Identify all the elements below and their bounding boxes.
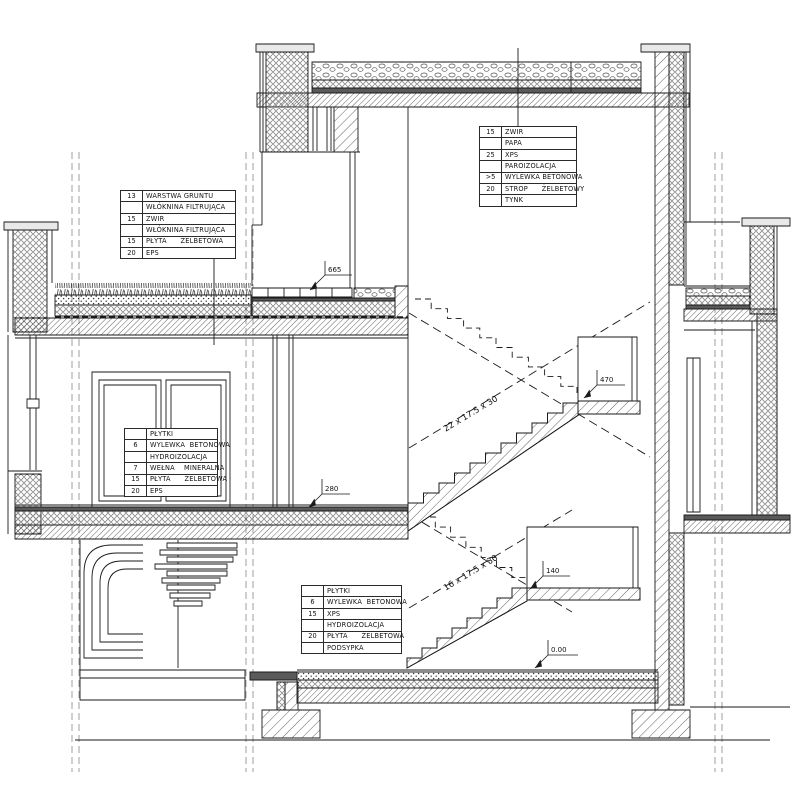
terrace-slab-edge — [395, 286, 408, 318]
left-window-transom — [27, 399, 39, 408]
layer-thickness — [302, 586, 324, 596]
material-layer-row: 6WYLEWKA BETONOWA — [125, 440, 217, 451]
annex-floor-finish — [684, 515, 790, 520]
material-layer-row: 15PŁYTA ŻELBETOWA — [121, 237, 235, 248]
material-layer-row: 6WYLEWKA BETONOWA — [302, 597, 401, 608]
parapet-insulation — [266, 52, 308, 152]
material-layer-row: PAPA — [480, 138, 576, 149]
right-wall-concrete — [655, 52, 669, 710]
layer-material: TYNK — [502, 197, 523, 204]
roof-coping-right — [641, 44, 690, 52]
layer-material: PAROIZOLACJA — [502, 163, 556, 170]
partition-wall — [273, 335, 408, 508]
material-layer-row: 15ZWIR — [480, 127, 576, 138]
mid-floor-insulation — [15, 511, 408, 525]
ground-slab — [297, 688, 658, 703]
layer-material: HYDROIZOLACJA — [147, 454, 207, 461]
material-layer-row: >5WYLEWKA BETONOWA — [480, 173, 576, 184]
layer-thickness: 7 — [125, 463, 147, 473]
layer-thickness: 20 — [121, 248, 143, 258]
terrace-slab — [15, 318, 408, 335]
material-layer-row: PODSYPKA — [302, 643, 401, 653]
layer-material: ZWIR — [502, 129, 523, 136]
layer-material: PŁYTA ŻELBETOWA — [147, 476, 227, 483]
layer-thickness — [121, 225, 143, 235]
layer-material: EPS — [143, 250, 159, 257]
material-layer-row: 20PŁYTA ŻELBETOWA — [302, 632, 401, 643]
architectural-section-drawing: 665 470 280 140 0.00 — [0, 0, 800, 800]
layer-thickness — [121, 202, 143, 212]
layer-material: HYDROIZOLACJA — [324, 622, 384, 629]
layer-thickness — [480, 161, 502, 171]
landing-470-opening — [578, 337, 637, 401]
layer-thickness: 13 — [121, 191, 143, 201]
material-layer-row: PŁYTKI — [302, 586, 401, 597]
material-layer-row: TYNK — [480, 195, 576, 205]
terrace-pavers — [252, 288, 352, 297]
terrace-insulation — [252, 301, 395, 316]
layer-material: PŁYTA ŻELBETOWA — [143, 238, 223, 245]
layer-thickness: 20 — [480, 184, 502, 194]
hidden-flight-steps-upper — [415, 299, 577, 396]
annex-floor-slab — [684, 520, 790, 533]
right-wall-insulation-upper — [669, 52, 684, 285]
layer-material: PŁYTKI — [324, 588, 350, 595]
layer-material: WYLEWKA BETONOWA — [502, 174, 583, 181]
layer-material: EPS — [147, 488, 163, 495]
right-annex — [684, 218, 790, 707]
annex-wall-insulation — [757, 314, 777, 515]
layer-material: ZWIR — [143, 216, 164, 223]
layer-thickness: 6 — [302, 597, 324, 607]
layer-material: PŁYTKI — [147, 431, 173, 438]
roof-slab — [257, 93, 689, 107]
landing-140-opening — [527, 527, 638, 588]
level-label: 665 — [328, 266, 341, 274]
main-roof-assembly — [256, 44, 690, 126]
layer-material: XPS — [324, 611, 340, 618]
layer-thickness — [302, 643, 324, 653]
ground-insulation — [297, 680, 658, 688]
level-label: 280 — [325, 485, 338, 493]
footing-left — [262, 710, 320, 738]
layer-material: WEŁNA MINERALNA — [147, 465, 225, 472]
level-marker-000: 0.00 — [535, 640, 578, 668]
layer-thickness: 15 — [121, 214, 143, 224]
layer-material: WŁÓKNINA FILTRUJĄCA — [143, 227, 225, 234]
level-label: 0.00 — [551, 646, 567, 654]
material-layer-row: 20EPS — [125, 486, 217, 496]
green-roof-assembly — [15, 256, 408, 345]
stairwell — [407, 337, 640, 668]
right-exterior-wall — [655, 52, 740, 710]
upper-flight-dimension: 22 x 17.5 x 30 — [442, 394, 500, 434]
layer-thickness: 20 — [302, 632, 324, 642]
roof-layers-table: 15ZWIRPAPA25XPSPAROIZOLACJA>5WYLEWKA BET… — [479, 126, 577, 207]
spiral-stair-treads — [155, 543, 237, 606]
layer-thickness: 15 — [302, 609, 324, 619]
roof-membrane-layer — [312, 88, 641, 93]
ground-floor-layers-table: PŁYTKI6WYLEWKA BETONOWA15XPSHYDROIZOLACJ… — [301, 585, 402, 654]
right-wall-insulation-lower — [669, 533, 684, 705]
material-layer-row: 15XPS — [302, 609, 401, 620]
material-layer-row: PAROIZOLACJA — [480, 161, 576, 172]
roof-coping-left — [256, 44, 314, 52]
material-layer-row: 25XPS — [480, 150, 576, 161]
material-layer-row: WŁÓKNINA FILTRUJĄCA — [121, 202, 235, 213]
layer-material: WYLEWKA BETONOWA — [147, 442, 230, 449]
ground-bedding — [297, 672, 658, 680]
material-layer-row: 7WEŁNA MINERALNA — [125, 463, 217, 474]
layer-thickness — [125, 452, 147, 462]
layer-thickness — [480, 138, 502, 148]
material-layer-row: HYDROIZOLACJA — [302, 620, 401, 631]
mid-floor-finish — [15, 507, 408, 511]
material-layer-row: 20EPS — [121, 248, 235, 258]
material-layer-row: 15ZWIR — [121, 214, 235, 225]
level-label: 470 — [600, 376, 613, 384]
layer-thickness — [302, 620, 324, 630]
annex-roof-screed — [686, 305, 750, 309]
mid-floor-layers-table: PŁYTKI6WYLEWKA BETONOWAHYDROIZOLACJA7WEŁ… — [124, 428, 218, 497]
mid-floor-slab — [15, 525, 408, 539]
clerestory-window — [313, 107, 331, 151]
exterior-finish-strip — [250, 672, 297, 680]
annex-parapet-insulation — [750, 226, 774, 314]
annex-window — [687, 358, 700, 512]
lower-patio-slab — [80, 670, 245, 700]
mid-floor-assembly — [15, 505, 408, 539]
annex-coping — [742, 218, 790, 226]
material-layer-row: WŁÓKNINA FILTRUJĄCA — [121, 225, 235, 236]
stem-insulation — [277, 682, 285, 710]
roof-gravel-layer — [312, 62, 641, 80]
annex-roof-gravel — [686, 288, 750, 296]
material-layer-row: 15PŁYTA ŻELBETOWA — [125, 475, 217, 486]
roof-insulation-layer — [312, 80, 641, 88]
level-marker-665: 665 — [310, 261, 352, 290]
layer-material: WARSTWA GRUNTU — [143, 193, 213, 200]
section-canvas: 665 470 280 140 0.00 — [0, 0, 800, 800]
layer-material: WYLEWKA BETONOWA — [324, 599, 407, 606]
clerestory-pier — [334, 107, 358, 152]
material-layer-row: PŁYTKI — [125, 429, 217, 440]
layer-material: PAPA — [502, 140, 522, 147]
lower-flight-dimension: 16 x 17.5 x 30 — [442, 553, 500, 593]
green-roof-insulation — [55, 305, 251, 316]
left-parapet-insulation — [13, 230, 47, 332]
layer-thickness — [480, 195, 502, 205]
layer-material: STROP ŻELBETOWY — [502, 186, 584, 193]
layer-thickness: 15 — [480, 127, 502, 137]
green-roof-grass — [55, 283, 251, 295]
terrace-gravel — [354, 288, 395, 298]
layer-thickness — [125, 429, 147, 439]
layer-material: PŁYTA ŻELBETOWA — [324, 633, 404, 640]
layer-thickness: 6 — [125, 440, 147, 450]
footing-right — [632, 710, 690, 738]
annex-roof-insulation — [686, 296, 750, 305]
green-roof-soil — [55, 295, 251, 305]
layer-thickness: 15 — [121, 237, 143, 247]
material-layer-row: 13WARSTWA GRUNTU — [121, 191, 235, 202]
layer-thickness: >5 — [480, 173, 502, 183]
layer-thickness: 20 — [125, 486, 147, 496]
layer-material: XPS — [502, 152, 518, 159]
left-exterior-wall — [8, 335, 42, 534]
spiral-stair-elevation — [80, 540, 245, 700]
layer-thickness: 15 — [125, 475, 147, 485]
green-roof-layers-table: 13WARSTWA GRUNTUWŁÓKNINA FILTRUJĄCA15ZWI… — [120, 190, 236, 259]
level-label: 140 — [546, 567, 559, 575]
material-layer-row: 20STROP ŻELBETOWY — [480, 184, 576, 195]
layer-material: WŁÓKNINA FILTRUJĄCA — [143, 204, 225, 211]
level-marker-280: 280 — [309, 479, 350, 507]
stem-wall — [285, 682, 298, 710]
left-parapet — [4, 222, 58, 332]
left-coping — [4, 222, 58, 230]
material-layer-row: HYDROIZOLACJA — [125, 452, 217, 463]
layer-material: PODSYPKA — [324, 645, 364, 652]
layer-thickness: 25 — [480, 150, 502, 160]
